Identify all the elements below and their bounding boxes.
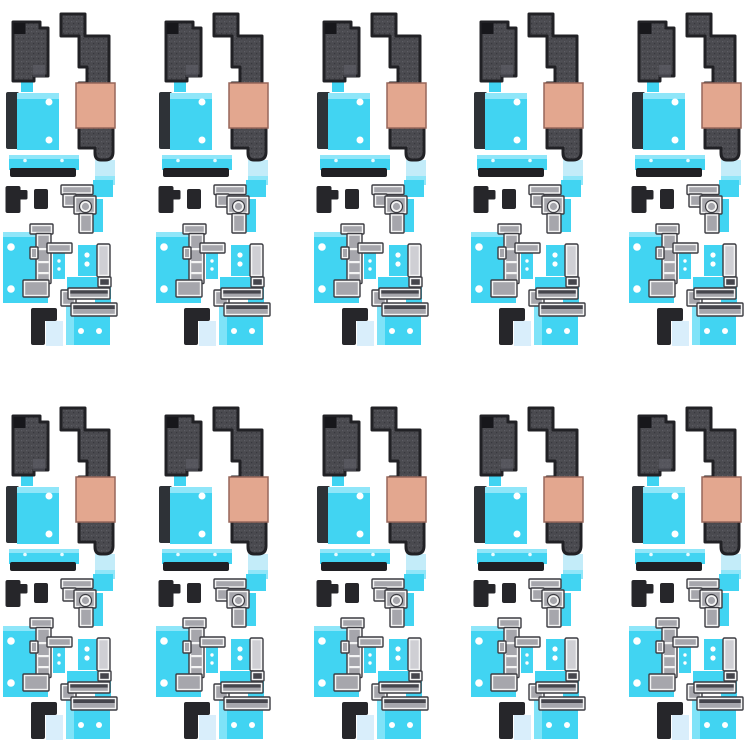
- sticker-set-instance-r2-c4: [471, 408, 585, 740]
- sticker-set-instances: [3, 14, 743, 740]
- sticker-set-instance-r1-c1: [3, 14, 117, 346]
- product-photo: [0, 0, 750, 750]
- sticker-set-grid: [0, 0, 750, 750]
- sticker-set-instance-r2-c3: [314, 408, 428, 740]
- sticker-set-instance-r2-c5: [629, 408, 743, 740]
- sticker-set-instance-r2-c1: [3, 408, 117, 740]
- sticker-set-instance-r1-c5: [629, 14, 743, 346]
- sticker-set-instance-r1-c2: [156, 14, 270, 346]
- sticker-set-instance-r1-c3: [314, 14, 428, 346]
- sticker-set-instance-r1-c4: [471, 14, 585, 346]
- sticker-set-instance-r2-c2: [156, 408, 270, 740]
